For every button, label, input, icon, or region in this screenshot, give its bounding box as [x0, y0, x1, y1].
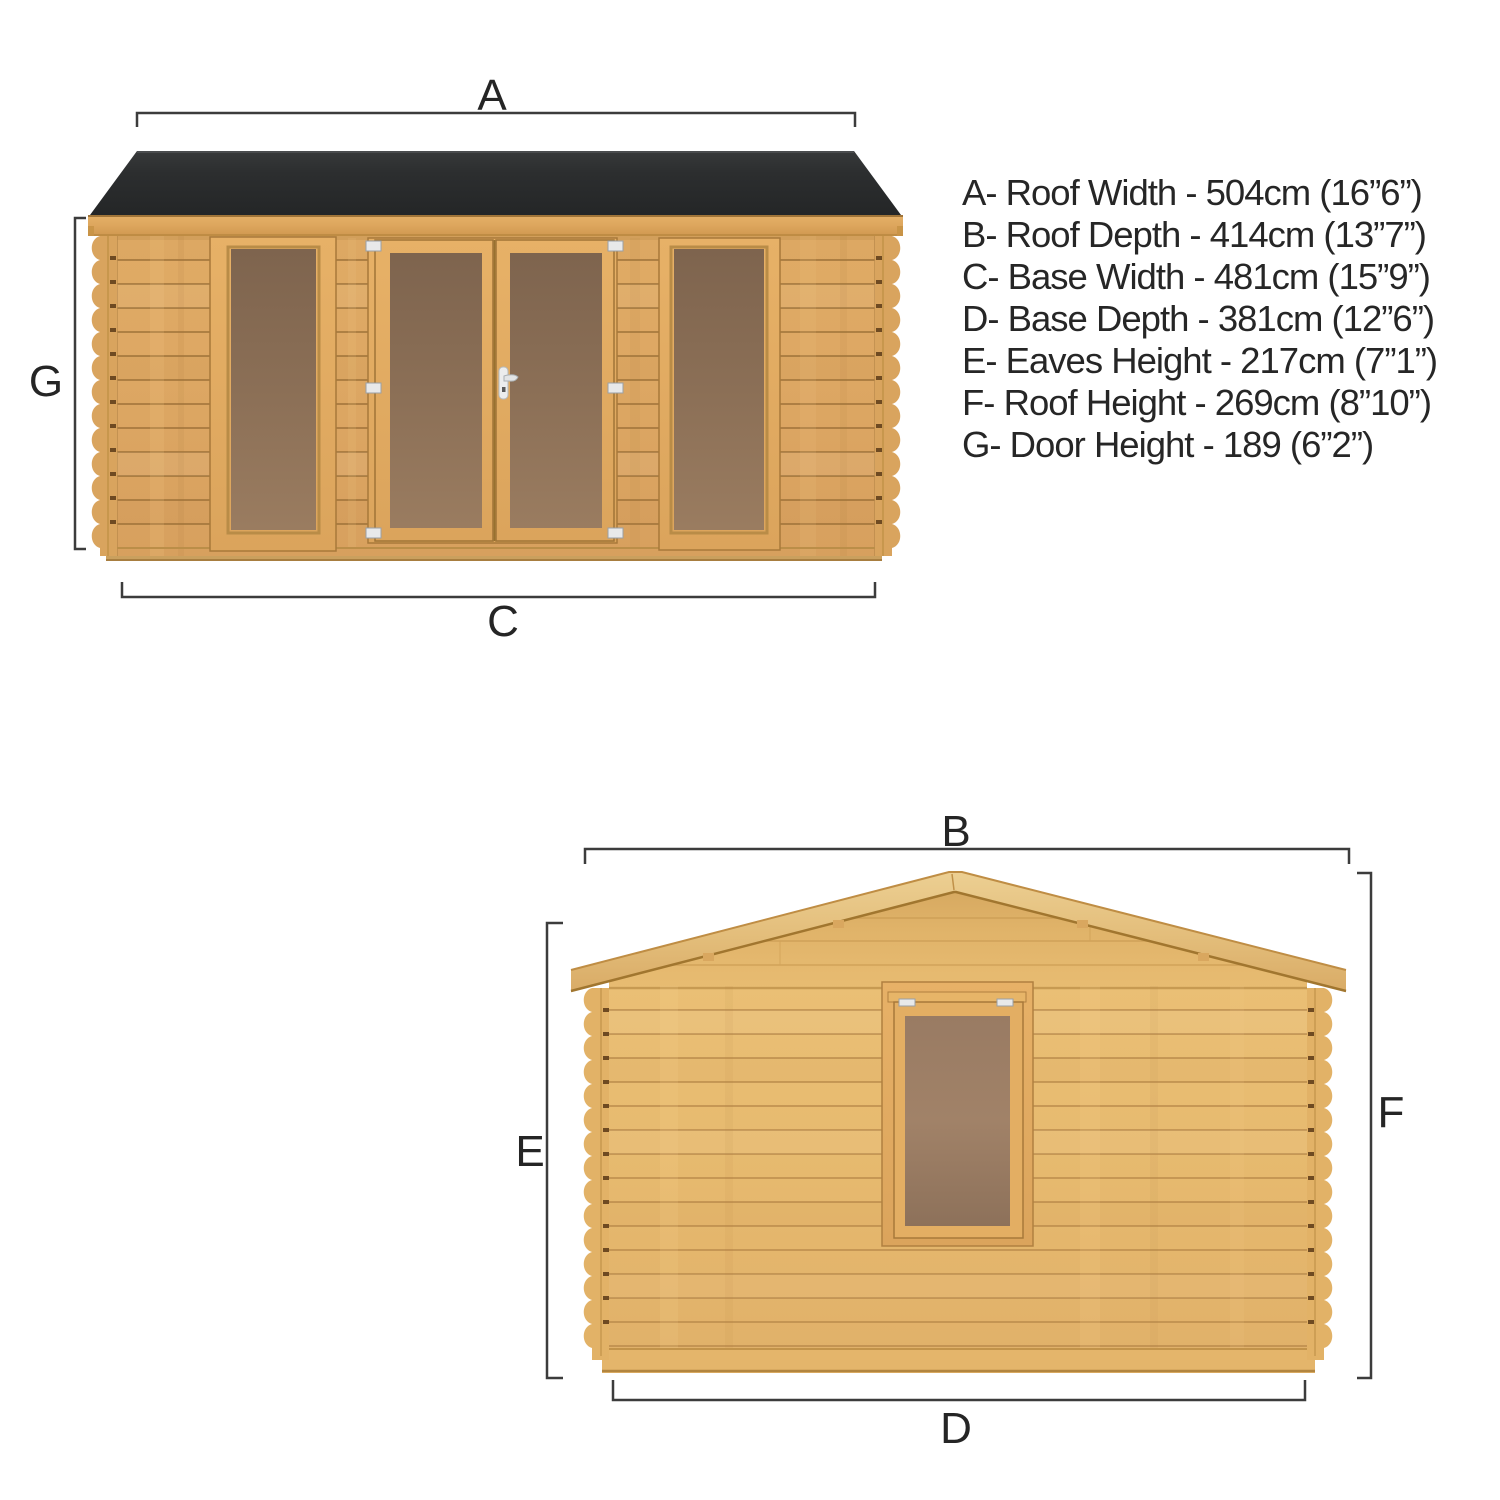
svg-text:B- Roof Depth - 414cm (13”7”): B- Roof Depth - 414cm (13”7”) — [962, 214, 1426, 255]
svg-text:G: G — [29, 357, 63, 406]
svg-text:F- Roof Height - 269cm (8”10”): F- Roof Height - 269cm (8”10”) — [962, 382, 1431, 423]
svg-text:D: D — [940, 1404, 972, 1453]
svg-text:B: B — [941, 807, 970, 856]
svg-text:C- Base Width - 481cm (15”9”): C- Base Width - 481cm (15”9”) — [962, 256, 1430, 297]
svg-text:C: C — [487, 597, 519, 646]
svg-text:G- Door Height - 189 (6”2”): G- Door Height - 189 (6”2”) — [962, 424, 1373, 465]
svg-text:A- Roof Width - 504cm (16”6”): A- Roof Width - 504cm (16”6”) — [962, 172, 1422, 213]
svg-text:D- Base Depth - 381cm (12”6”): D- Base Depth - 381cm (12”6”) — [962, 298, 1434, 339]
svg-text:E- Eaves Height - 217cm (7”1”): E- Eaves Height - 217cm (7”1”) — [962, 340, 1437, 381]
svg-text:F: F — [1378, 1088, 1405, 1137]
svg-text:E: E — [515, 1127, 544, 1176]
svg-text:A: A — [477, 71, 507, 120]
